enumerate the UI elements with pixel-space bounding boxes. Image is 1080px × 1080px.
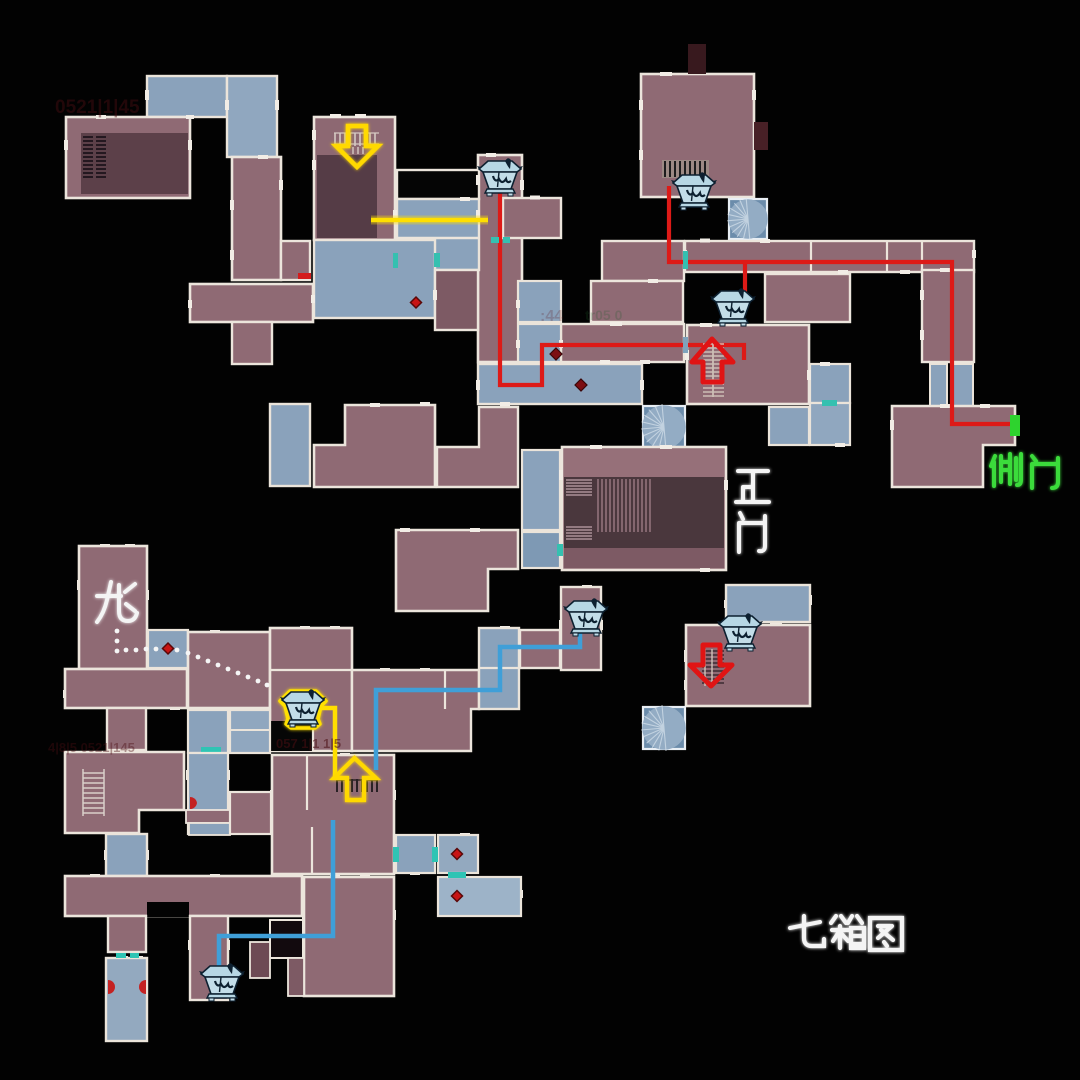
svg-text:057 1|1 1|5: 057 1|1 1|5 (276, 736, 341, 751)
svg-text:tr05 0: tr05 0 (585, 307, 623, 323)
svg-text:0521|1|45: 0521|1|45 (55, 97, 140, 118)
svg-text::44: :44 (540, 308, 563, 325)
svg-text:4|8|5 0521|145: 4|8|5 0521|145 (48, 740, 135, 755)
